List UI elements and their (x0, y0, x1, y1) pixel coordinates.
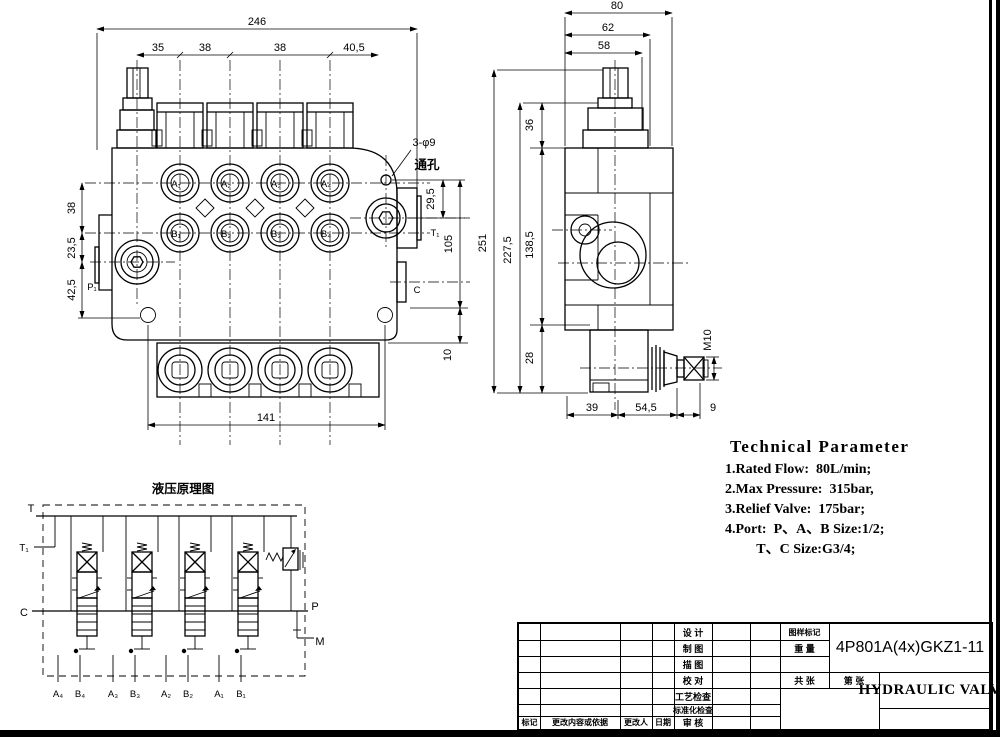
schematic-port-label: P (311, 601, 318, 613)
hydraulic-schematic: 液压原理图 T T₁ C P M A₄ B₄ A₃ B₃ A₂ B₂ A₁ B₁ (19, 481, 324, 700)
schematic-port-label: A₃ (108, 689, 118, 700)
schematic-port-label: T₁ (19, 543, 29, 554)
titleblock-label-change-content: 更改内容或依据 (540, 716, 620, 729)
technical-parameter-line: 1.Rated Flow: 80L/min; (725, 460, 991, 480)
titleblock-label-standard-check: 标准化检查 (674, 704, 712, 716)
schematic-port-label: A₁ (214, 689, 224, 700)
dimension-label: 36 (524, 119, 536, 131)
dimension-label: 28 (524, 352, 536, 364)
port-label: A₃ (271, 179, 281, 190)
schematic-port-label: A₄ (53, 689, 63, 700)
port-label: A₁ (171, 179, 181, 190)
relief-adjuster (117, 68, 156, 148)
dimension-label: 35 (152, 42, 164, 54)
dimension-label: 23,5 (66, 237, 78, 258)
titleblock-label-mark: 标记 (519, 716, 540, 729)
titleblock-label-date: 日期 (652, 716, 674, 729)
technical-parameters: Technical Parameter 1.Rated Flow: 80L/mi… (725, 437, 991, 560)
dimension-label: 10 (442, 349, 454, 361)
titleblock-label-changed-by: 更改人 (620, 716, 652, 729)
sheet-border-right-inner (989, 0, 992, 737)
titleblock-label-approved: 审 核 (674, 716, 712, 729)
port-label: T₁ (430, 228, 439, 239)
port-label: B₂ (221, 229, 231, 240)
schematic-port-label: B₂ (183, 689, 193, 700)
port-label: B₃ (271, 229, 281, 240)
port-label: P₁ (87, 282, 97, 293)
schematic-port-label: T (28, 503, 35, 515)
dimension-label: 141 (257, 412, 275, 424)
schematic-port-label: A₂ (161, 689, 171, 700)
engineering-drawing-sheet: 246 35 38 38 40,5 38 23,5 42,5 29,5 105 … (0, 0, 1000, 737)
dimension-label: 80 (611, 0, 623, 12)
technical-parameter-line: 2.Max Pressure: 315bar, (725, 480, 991, 500)
schematic-port-label: B₄ (75, 689, 85, 700)
dimension-label: 39 (586, 402, 598, 414)
titleblock-label-checked: 校 对 (674, 672, 712, 688)
port-label: A₄ (321, 179, 331, 190)
titleblock-label-drafted: 制 图 (674, 640, 712, 656)
titleblock-label-weight: 重 量 (780, 640, 829, 656)
titleblock-label-drawing-mark: 图样标记 (780, 624, 829, 640)
port-label: C (414, 285, 421, 296)
dimension-label: 9 (710, 402, 716, 414)
titleblock-label-design: 设 计 (674, 624, 712, 640)
dimension-label: 38 (66, 202, 78, 214)
dimension-label: 246 (248, 16, 266, 28)
port-label: A₂ (221, 179, 231, 190)
dimension-label: 227,5 (502, 236, 514, 264)
dimension-label: 251 (477, 234, 489, 252)
dimension-label: 54,5 (635, 402, 656, 414)
schematic-port-label: M (315, 636, 324, 648)
port-label: B₁ (171, 229, 181, 240)
hole-note-cjk: 通孔 (414, 157, 440, 172)
port-label: B₄ (321, 229, 331, 240)
dimension-label: 29,5 (425, 188, 437, 209)
side-view-drawing: 80 62 58 251 227,5 36 138,5 28 39 54,5 9… (477, 0, 722, 419)
technical-parameter-line: T、C Size:G3/4; (725, 540, 991, 560)
hole-note: 3-φ9 (412, 137, 435, 149)
titleblock-label-traced: 描 图 (674, 656, 712, 672)
dimension-label: 62 (602, 22, 614, 34)
titleblock-label-total-sheets: 共 张 (780, 672, 829, 688)
sheet-border-right-edge (996, 0, 1000, 737)
schematic-port-label: C (20, 607, 28, 619)
bottom-spool-block (157, 343, 379, 397)
dimension-label: 38 (274, 42, 286, 54)
front-view-drawing: 246 35 38 38 40,5 38 23,5 42,5 29,5 105 … (66, 16, 470, 445)
product-name: HYDRAULIC VALVE (879, 672, 991, 708)
sheet-border-bottom (0, 730, 1000, 737)
technical-parameter-line: 4.Port: P、A、B Size:1/2; (725, 520, 991, 540)
dimension-label: 38 (199, 42, 211, 54)
spool-caps (152, 103, 353, 148)
dimension-label: 105 (443, 235, 455, 253)
technical-parameters-title: Technical Parameter (725, 437, 991, 457)
dimension-label: 40,5 (343, 42, 364, 54)
schematic-title: 液压原理图 (152, 481, 215, 496)
title-block: 设 计 制 图 描 图 校 对 工艺检查 标准化检查 审 核 标记 更改内容或依… (517, 622, 993, 731)
dimension-label: 42,5 (66, 279, 78, 300)
schematic-port-label: B₃ (130, 689, 140, 700)
schematic-port-label: B₁ (236, 689, 246, 700)
technical-parameter-line: 3.Relief Valve: 175bar; (725, 500, 991, 520)
titleblock-label-process-check: 工艺检查 (674, 688, 712, 704)
thread-label: M10 (702, 329, 714, 350)
model-number: 4P801A(4x)GKZ1-11 (829, 624, 991, 672)
dimension-label: 138,5 (524, 231, 536, 259)
dimension-label: 58 (598, 40, 610, 52)
